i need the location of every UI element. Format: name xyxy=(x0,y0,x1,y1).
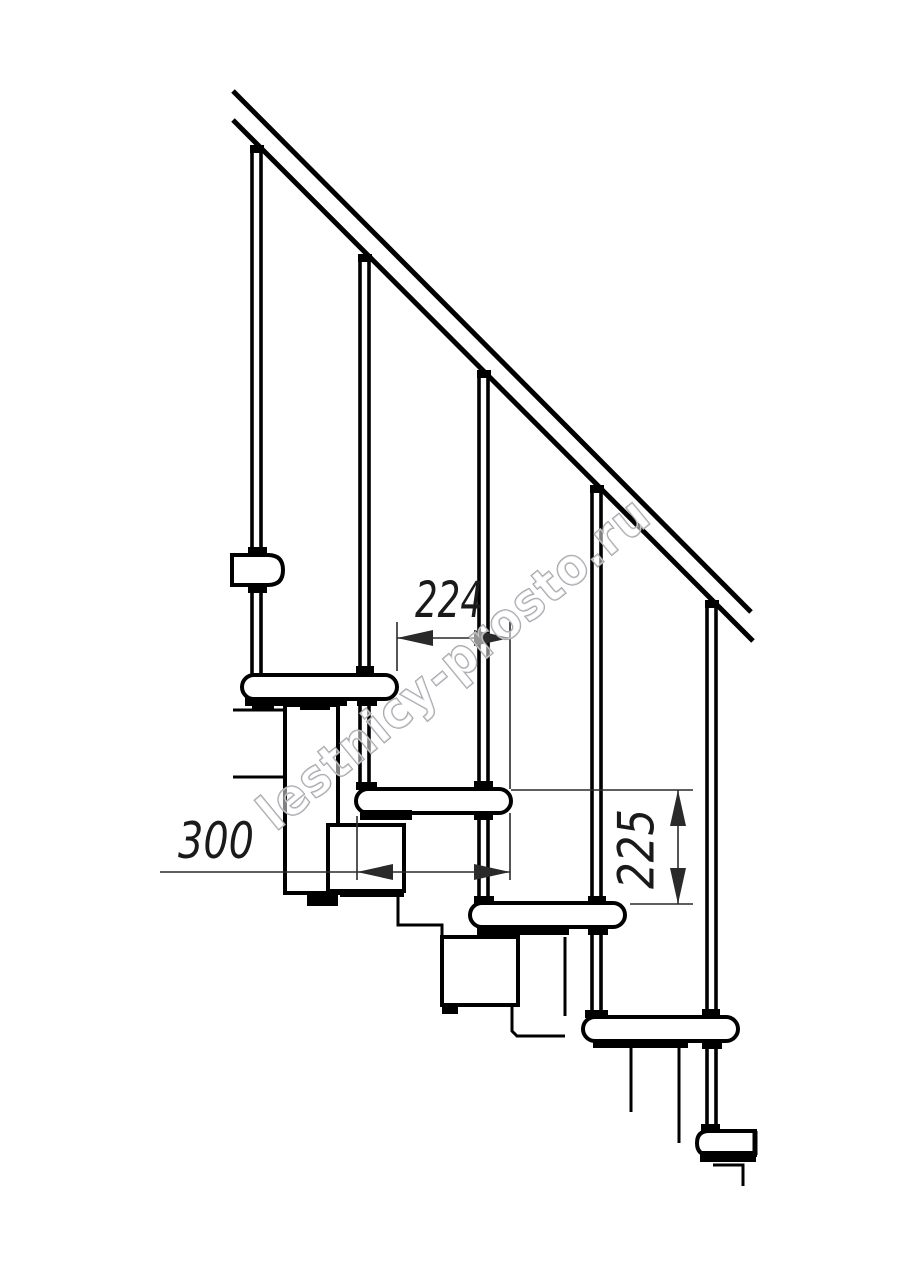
module-underside xyxy=(340,891,404,897)
arrowhead-left xyxy=(397,630,433,646)
baluster-collar xyxy=(588,928,608,935)
baluster-cap xyxy=(250,145,264,153)
handrail xyxy=(233,91,753,641)
module-box-3 xyxy=(328,825,404,891)
connector-bump xyxy=(300,704,330,710)
baluster-cap xyxy=(477,370,491,378)
tread-4 xyxy=(470,903,625,927)
tread-underside-strip xyxy=(245,697,347,706)
handrail-upper-line xyxy=(233,91,751,612)
module-box-4 xyxy=(442,937,518,1005)
arrowhead-down xyxy=(670,868,686,904)
handrail-lower-line xyxy=(233,120,753,641)
tread-underside-strip xyxy=(700,1151,756,1162)
baluster-5 xyxy=(705,607,718,1131)
arrowhead-up xyxy=(670,790,686,826)
baluster-cap xyxy=(590,485,604,493)
staircase-side-view-drawing: 224 300 225 lestnicy-prosto.ru xyxy=(0,0,914,1280)
tread-3 xyxy=(356,789,511,813)
baluster-foot xyxy=(701,1124,720,1132)
dimension-value-rise: 225 xyxy=(608,809,666,889)
baluster-foot xyxy=(356,782,377,790)
technical-drawing-page: 224 300 225 lestnicy-prosto.ru xyxy=(0,0,914,1280)
baluster-collar xyxy=(356,666,374,677)
module-foot xyxy=(307,893,338,906)
baluster-foot xyxy=(474,896,494,904)
baluster-foot xyxy=(585,1010,608,1018)
baluster-cap xyxy=(705,600,719,608)
module-foot xyxy=(442,1005,458,1014)
baluster-collar xyxy=(248,585,267,593)
baluster-1 xyxy=(250,152,263,697)
tread-5 xyxy=(583,1017,738,1041)
baluster-collar xyxy=(474,781,493,791)
module-fading-corner xyxy=(713,1165,743,1186)
baluster-collar xyxy=(702,1042,722,1049)
tread-underside-strip xyxy=(593,1041,688,1048)
baluster-cap xyxy=(358,254,372,262)
baluster-collar xyxy=(702,1009,720,1018)
dimension-value-depth: 300 xyxy=(178,812,254,870)
arrowhead-right xyxy=(474,864,510,880)
tread-underside-strip xyxy=(360,810,412,820)
baluster-collar xyxy=(248,547,267,556)
module-connector-3-4 xyxy=(398,891,442,937)
tread-underside-strip xyxy=(477,927,569,935)
tread-1 xyxy=(232,555,283,585)
baluster-collar xyxy=(474,813,493,820)
connector-bump xyxy=(252,706,274,711)
baluster-collar xyxy=(588,896,606,905)
module-connector-4-5 xyxy=(512,1005,565,1036)
